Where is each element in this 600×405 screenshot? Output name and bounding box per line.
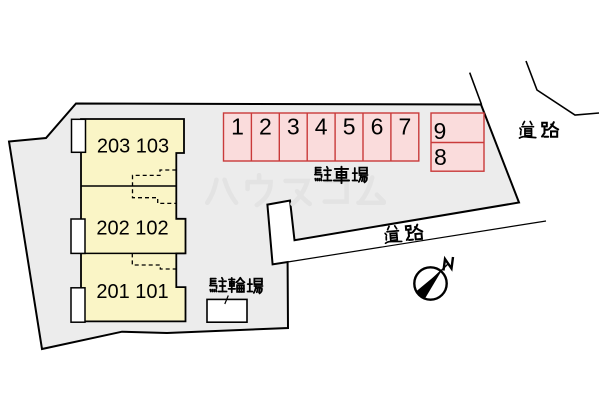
svg-text:1: 1	[231, 113, 244, 139]
svg-text:3: 3	[287, 113, 300, 139]
svg-text:202 102: 202 102	[96, 218, 168, 240]
svg-text:6: 6	[371, 113, 384, 139]
svg-text:4: 4	[315, 113, 328, 139]
svg-text:5: 5	[343, 113, 356, 139]
svg-text:9: 9	[434, 118, 447, 144]
svg-text:2: 2	[259, 113, 272, 139]
svg-text:203 103: 203 103	[97, 136, 169, 158]
svg-text:8: 8	[434, 144, 447, 170]
svg-text:7: 7	[399, 113, 412, 139]
svg-text:201 101: 201 101	[96, 281, 168, 303]
